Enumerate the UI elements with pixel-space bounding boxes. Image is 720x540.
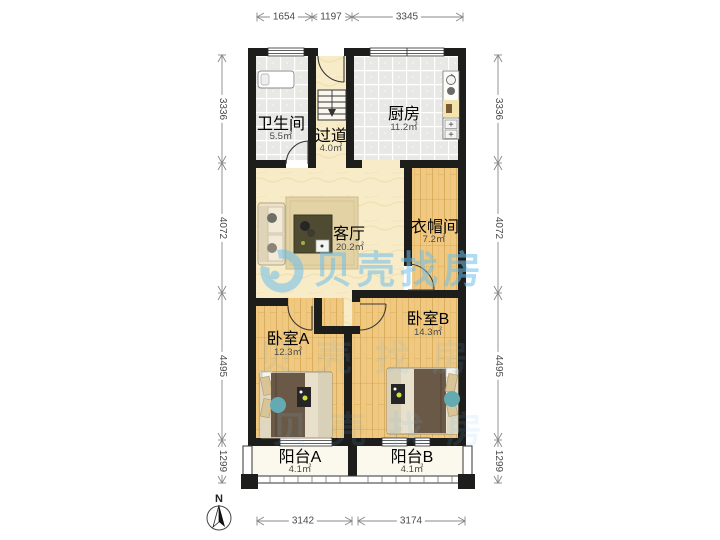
window-top-kitchen [370,48,444,56]
dim-bottom-1: 3142 [289,515,317,527]
dim-left-2: 4072 [216,214,228,242]
room-label-bedroom-a-area: 12.3㎡ [274,344,302,358]
dim-right-1: 3336 [492,95,504,123]
dim-right-3: 4495 [492,352,504,380]
room-label-cloakroom-area: 7.2㎡ [423,231,446,245]
dim-top-1: 1654 [270,11,298,23]
room-label-balcony-a-area: 4.1㎡ [289,461,312,475]
dim-right-2: 4072 [492,214,504,242]
dim-left-1: 3336 [216,95,228,123]
dim-left-4: 1299 [216,447,228,475]
compass-north-label: N [215,493,223,505]
floorplan-page: 贝壳找房 贝壳找房 贝壳找房 卫生间 5.5㎡ 过道 4.0㎡ 厨房 11.2㎡… [0,0,720,540]
room-label-kitchen-area: 11.2㎡ [390,119,417,133]
stairs-icon [318,90,346,120]
room-label-bathroom-area: 5.5㎡ [270,128,293,142]
beike-shell-logo-icon [256,244,308,298]
room-label-bedroom-b-area: 14.3㎡ [414,324,442,338]
dim-top-3: 3345 [393,11,421,23]
room-label-balcony-b-area: 4.1㎡ [401,461,424,475]
kitchen-counter [443,71,459,139]
dim-left-3: 4495 [216,352,228,380]
dim-right-4: 1299 [492,447,504,475]
watermark-brand: 贝壳找房 [256,244,486,298]
dim-bottom-2: 3174 [397,515,425,527]
room-label-hallway-area: 4.0㎡ [320,140,343,154]
room-label-living-area: 20.2㎡ [336,239,364,253]
window-top-bathroom [268,48,304,56]
dim-top-2: 1197 [317,11,345,23]
compass-icon [207,505,231,530]
bathtub-icon [258,71,294,88]
watermark-text: 贝壳找房 [314,252,486,290]
